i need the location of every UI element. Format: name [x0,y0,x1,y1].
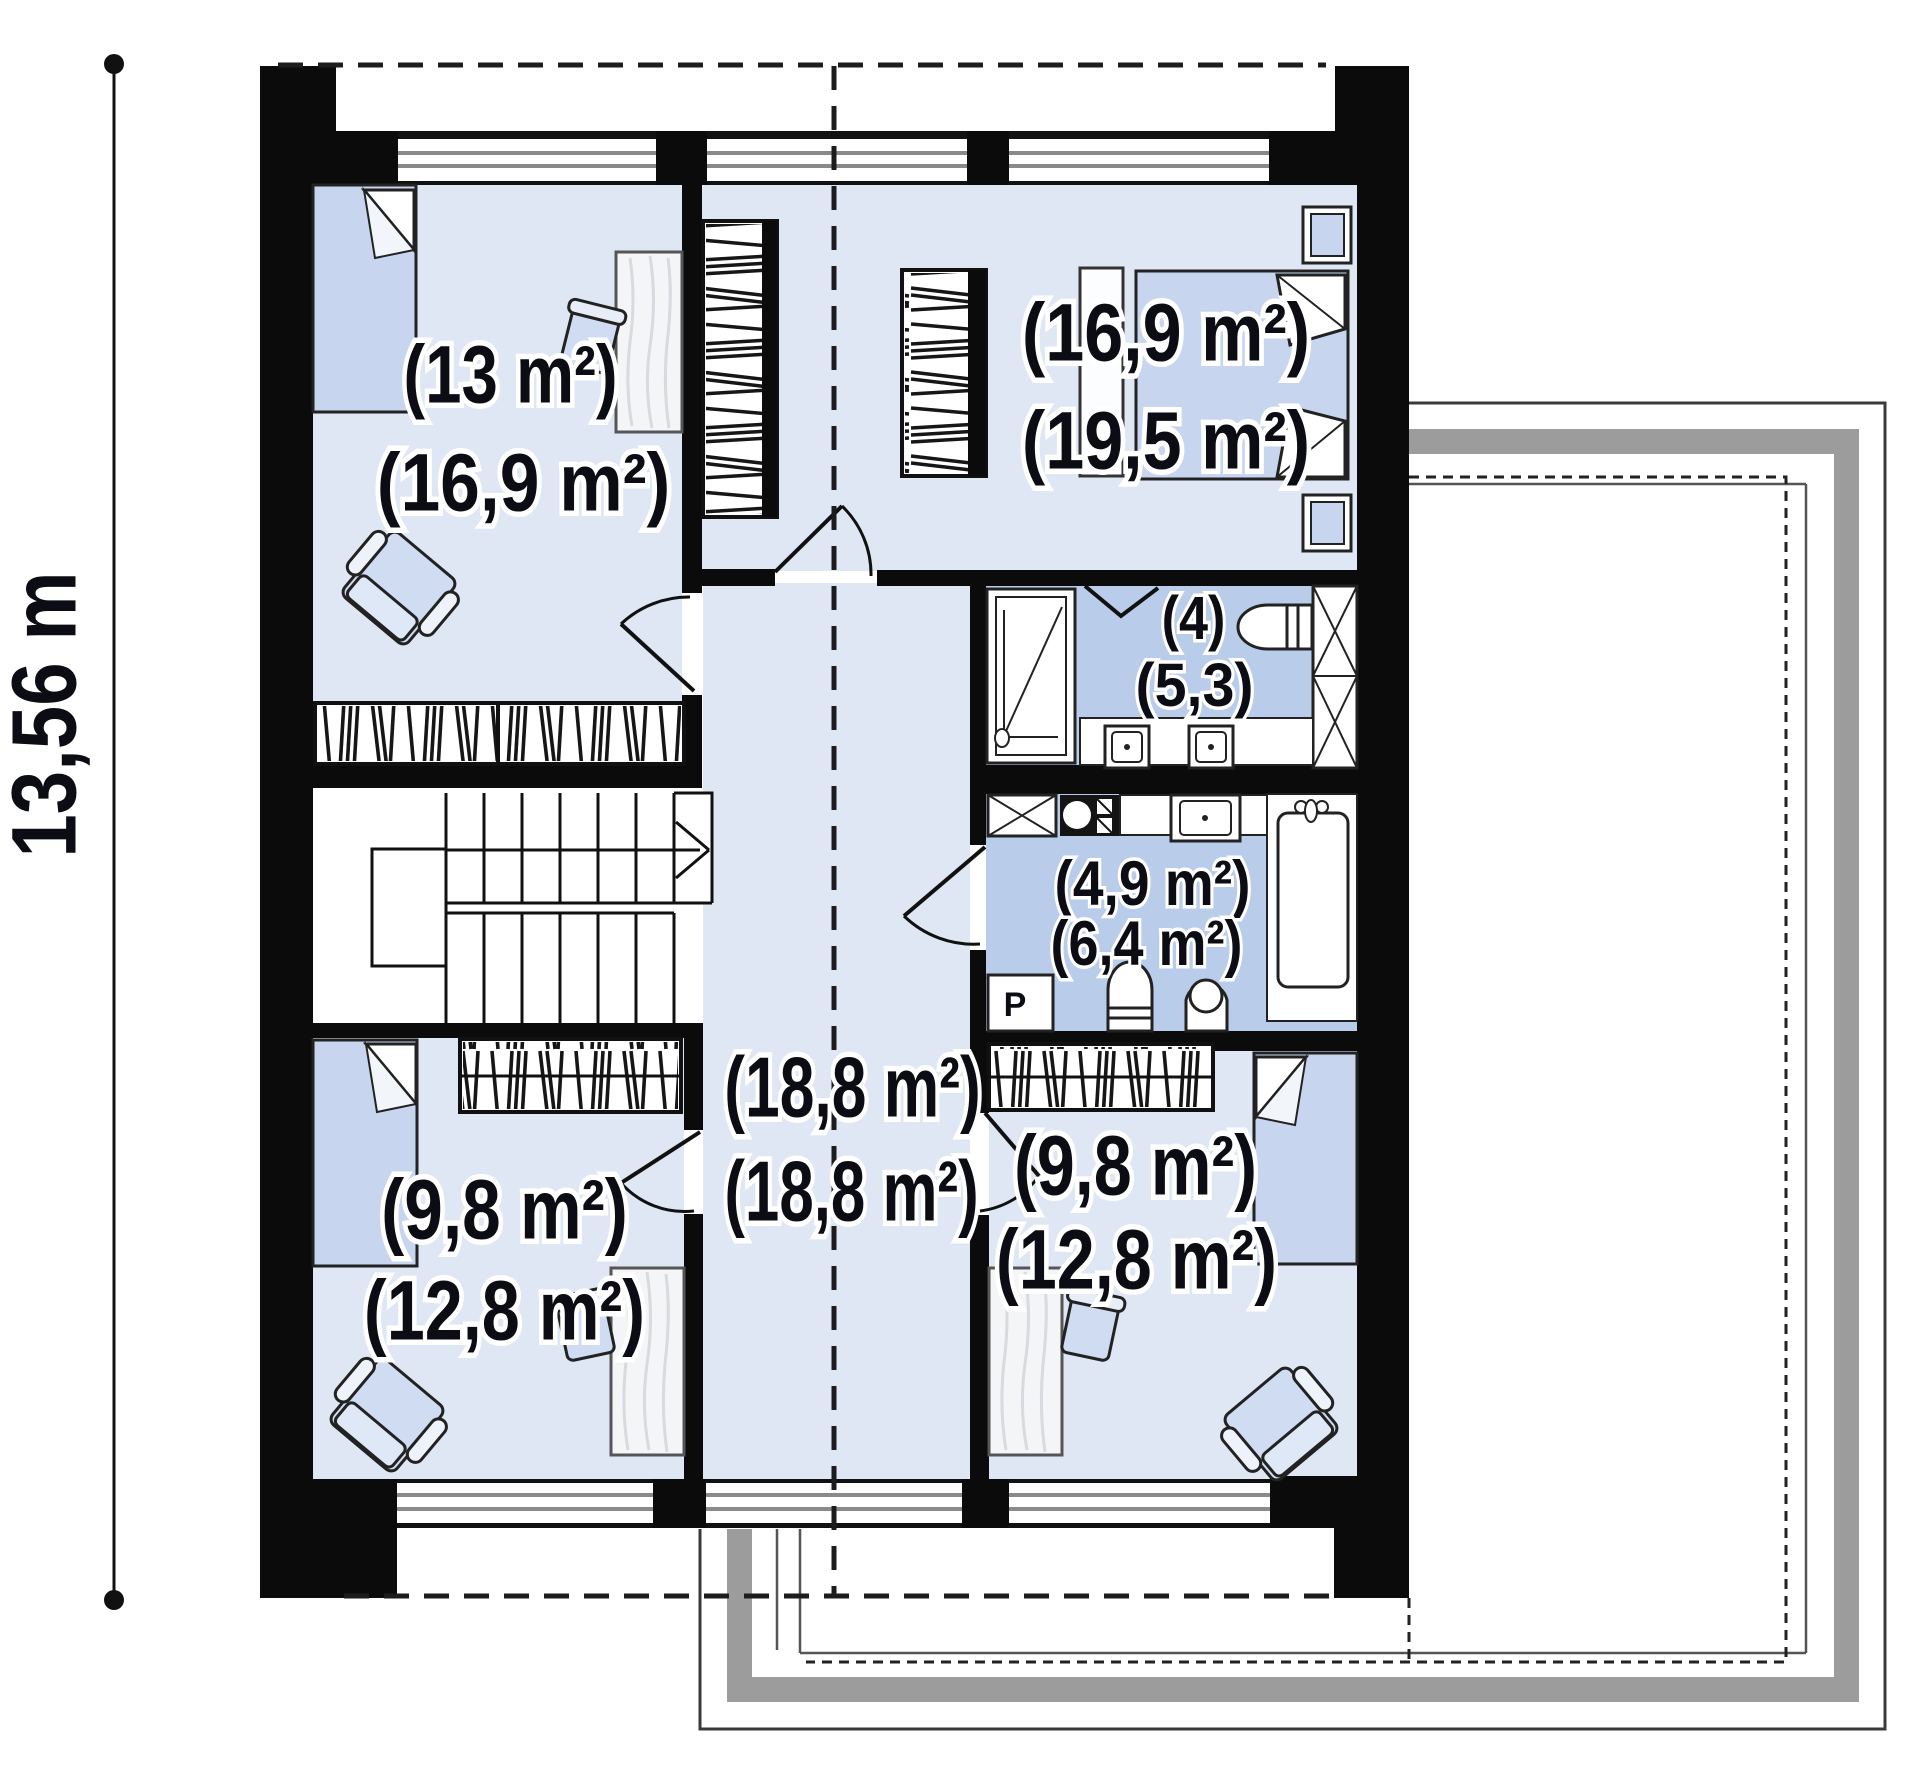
svg-text:(9,8 m²): (9,8 m²) [381,1163,628,1257]
svg-text:(12,8 m²): (12,8 m²) [364,1265,645,1358]
svg-text:(4): (4) [1162,584,1226,653]
svg-text:(16,9 m²): (16,9 m²) [1022,287,1310,378]
svg-text:P: P [1004,986,1027,1024]
svg-text:(19,5 m²): (19,5 m²) [1022,395,1310,486]
svg-text:(13 m²): (13 m²) [403,328,617,420]
svg-text:(9,8 m²): (9,8 m²) [1014,1120,1257,1213]
svg-text:(6,4 m²): (6,4 m²) [1051,909,1243,979]
svg-text:(5,3): (5,3) [1135,650,1253,719]
svg-text:(18,8 m²): (18,8 m²) [724,1039,980,1135]
svg-text:(12,8 m²): (12,8 m²) [996,1214,1277,1307]
svg-text:13,56 m: 13,56 m [0,571,96,857]
svg-text:(18,8 m²): (18,8 m²) [724,1144,978,1239]
svg-text:(16,9 m²): (16,9 m²) [377,437,671,529]
